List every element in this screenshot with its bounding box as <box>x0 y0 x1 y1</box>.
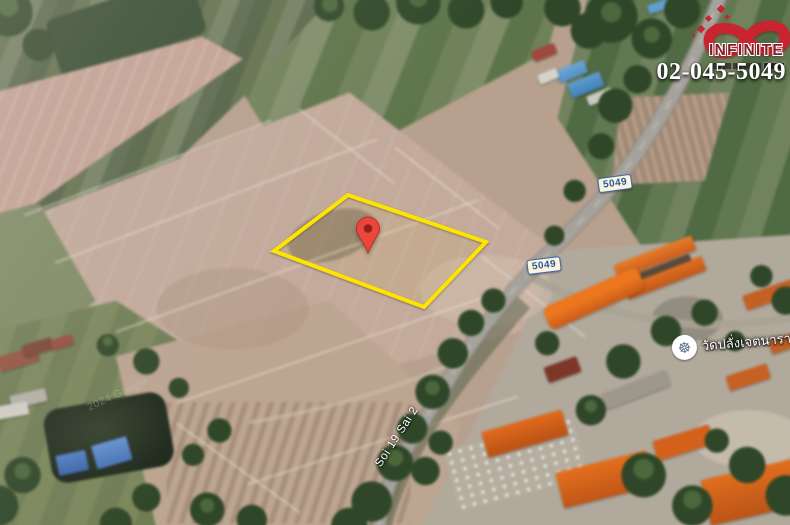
logo-text: INFINITE <box>709 42 784 60</box>
land-listing-map[interactable]: 5049 5049 Soi 19 Sai 2 ☸ วัดปลั่งเจตนารา… <box>0 0 790 525</box>
buddhist-temple-icon: ☸ <box>671 334 698 361</box>
logo-dot <box>691 33 695 37</box>
phone-number: 02-045-5049 <box>657 59 786 86</box>
parcel-outline <box>274 195 486 307</box>
